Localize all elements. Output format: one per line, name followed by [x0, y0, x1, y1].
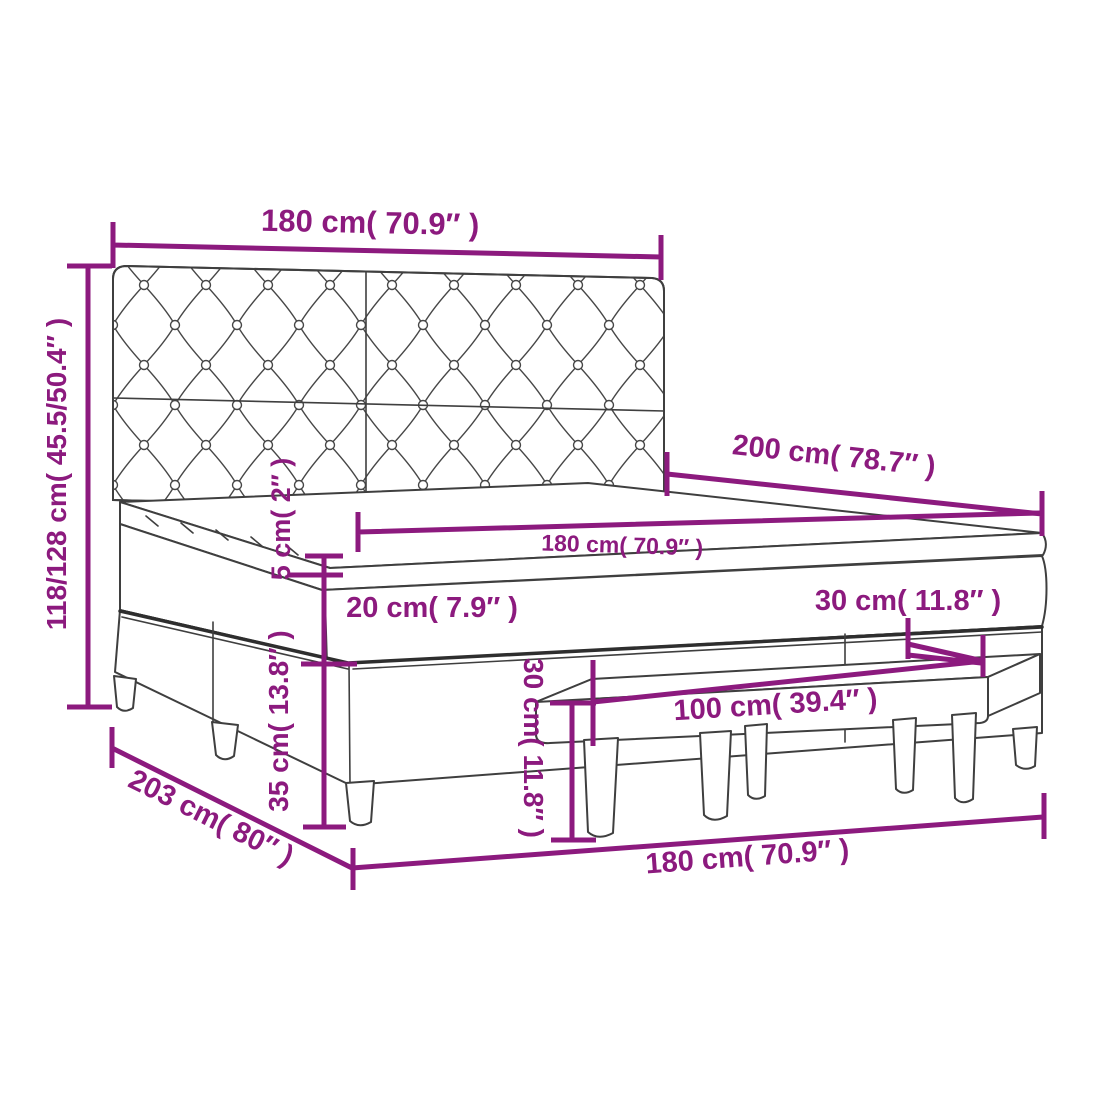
headboard — [113, 266, 664, 513]
diagram-canvas: 180 cm( 70.9″ ) 118/128 cm( 45.5/50.4″ )… — [0, 0, 1100, 1100]
bench-leg — [584, 738, 618, 837]
bench-leg — [952, 713, 976, 802]
label-bench-height: 30 cm( 11.8″ ) — [518, 658, 549, 838]
label-frame-width: 180 cm( 70.9″ ) — [644, 834, 850, 881]
bench-leg — [700, 731, 731, 820]
bed-leg — [114, 676, 136, 711]
label-total-height: 118/128 cm( 45.5/50.4″ ) — [41, 318, 72, 630]
bench-leg-rear — [893, 718, 916, 793]
headboard-tufting-pattern — [113, 266, 664, 513]
bed-leg — [346, 781, 374, 825]
label-mattress-width: 180 cm( 70.9″ ) — [541, 529, 704, 560]
dim-total-height — [67, 266, 112, 707]
bed-dimension-diagram: 180 cm( 70.9″ ) 118/128 cm( 45.5/50.4″ )… — [0, 0, 1100, 1100]
label-bed-length: 200 cm( 78.7″ ) — [731, 429, 937, 483]
bench-leg-rear — [745, 724, 767, 799]
label-mattress-thickness: 20 cm( 7.9″ ) — [346, 592, 518, 624]
label-base-height: 35 cm( 13.8″ ) — [263, 630, 294, 812]
label-topper-thickness: 5 cm( 2″ ) — [266, 458, 296, 580]
bed-leg — [212, 722, 238, 759]
label-headboard-width: 180 cm( 70.9″ ) — [261, 203, 480, 243]
bed-leg — [1013, 727, 1037, 769]
label-bench-setback: 30 cm( 11.8″ ) — [815, 585, 1001, 617]
